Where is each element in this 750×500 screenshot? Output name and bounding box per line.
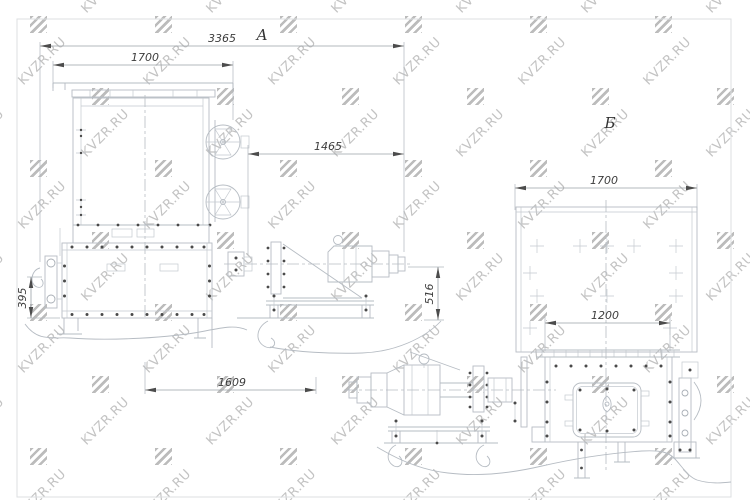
technical-drawing: 3365 1700 1465 395 1609 516 А [0, 0, 750, 500]
dim-overall-length: 3365 [208, 32, 236, 45]
view-b-access-door [565, 383, 649, 437]
dim-hopper-width-b: 1700 [590, 174, 618, 187]
view-a-left-bracket [32, 256, 62, 308]
view-a-label: А [255, 26, 267, 44]
dim-base-length: 1609 [218, 376, 246, 389]
view-b-right-bracket [670, 362, 701, 458]
dim-hopper-width-a: 1700 [131, 51, 159, 64]
drawing-frame-border [17, 19, 731, 497]
dim-drive-length: 1465 [314, 140, 342, 153]
view-b-label: Б [603, 114, 615, 132]
view-a: 3365 1700 1465 395 1609 516 А [16, 26, 444, 394]
view-b-motor [344, 352, 556, 415]
dim-drive-height: 516 [423, 284, 436, 305]
dim-body-width: 1200 [591, 309, 619, 322]
view-b-body [545, 357, 672, 442]
dim-side-height: 395 [16, 288, 29, 309]
view-b-ground [377, 447, 731, 483]
view-b-coupling [440, 357, 545, 442]
view-a-drive [224, 236, 412, 319]
view-a-vibrators [206, 120, 249, 222]
view-a-supports [25, 318, 441, 353]
view-b-flange [536, 350, 680, 357]
drawing-sheet: KVZR.RUKVZR.RUKVZR.RUKVZR.RUKVZR.RUKVZR.… [0, 0, 750, 500]
view-b: 1700 1200 Б [344, 114, 731, 483]
view-a-screen-box [62, 243, 212, 318]
